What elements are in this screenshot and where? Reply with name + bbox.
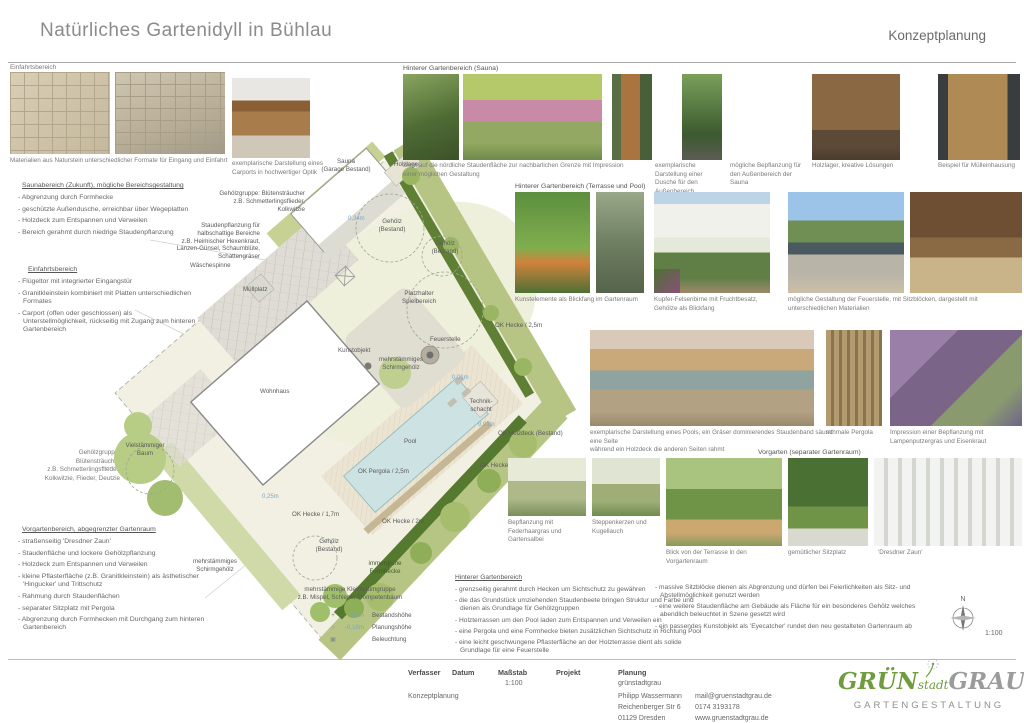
plan-label-holzdeck: OK Holzdeck (Bestand)	[498, 430, 573, 438]
caption-fountain-grass: Impression einer Bepflanzung mit Lampenp…	[890, 429, 1022, 446]
caption-stauden-border: Sicht auf die nördliche Staudenfläche zu…	[403, 162, 633, 179]
photo-terrace-pool-view	[788, 192, 904, 293]
header-rule	[8, 62, 1016, 63]
logo-wordmark: GRÜNstadtGRAU	[838, 668, 1020, 695]
titleblock-web: www.gruenstadtgrau.de	[695, 715, 769, 722]
photo-wood-storage	[812, 74, 900, 160]
note-item: - eine leicht geschwungene Pflasterfläch…	[455, 639, 705, 655]
caption-serviceberry: Kupfer-Felsenbirne mit Fruchtbesatz, Geh…	[654, 296, 774, 313]
photo-sauna-planting	[682, 74, 722, 160]
photo-waste-enclosure	[938, 74, 1020, 160]
north-label: N	[946, 596, 980, 603]
titleblock-header-datum: Datum	[452, 668, 474, 677]
caption-feather-grass: Bepflanzung mit Federhaargras und Garten…	[508, 519, 588, 545]
caption-wood-storage: Holzlager, kreative Lösungen	[812, 162, 912, 171]
section-heading-terrasse-pool: Hinterer Gartenbereich (Terrasse und Poo…	[515, 183, 645, 190]
photo-foxtail-lilies	[592, 458, 660, 516]
photo-fountain-grass	[890, 330, 1022, 426]
caption-outdoor-shower: exemplarische Darstellung einer Dusche f…	[655, 162, 723, 196]
concept-plan-sheet: { "header": { "title": "Natürliches Gart…	[0, 0, 1024, 723]
titleblock-email: mail@gruenstadtgrau.de	[695, 693, 772, 700]
plan-label-kunstobjekt: Kunstobjekt	[338, 347, 370, 355]
photo-narrow-pergola	[826, 330, 882, 426]
plan-label-waeschespinne: Wäschespinne	[190, 262, 231, 270]
legend-value: 0,0m	[338, 612, 364, 619]
legend-value: -0,18m	[338, 624, 364, 631]
titleblock-header-planung: Planung	[618, 668, 646, 677]
photo-art-sculpture	[596, 192, 644, 293]
plan-label-sauna: Sauna (Garage Bestand)	[310, 158, 382, 174]
company-logo: GRÜNstadtGRAU GARTENGESTALTUNG	[838, 660, 1020, 720]
legend-label: Beleuchtung	[372, 636, 406, 643]
rear-garden-notes-col2: - massive Sitzblöcke dienen als Abgrenzu…	[655, 584, 935, 634]
legend-row: ○ -0,18m Planungshöhe	[328, 624, 438, 631]
note-item: - massive Sitzblöcke dienen als Abgrenzu…	[655, 584, 935, 600]
titleblock-header-verfasser: Verfasser	[408, 668, 440, 677]
plan-label-kleinbaum: mehrstämmige Kleinbaumgruppe z.B. Mispel…	[290, 586, 410, 602]
titleblock-header-massstab: Maßstab	[498, 668, 527, 677]
photo-outdoor-shower	[612, 74, 652, 160]
photo-fire-bowl-bench	[910, 192, 1022, 293]
caption-art-elements: Kunstelemente als Blickfang im Gartenrau…	[515, 296, 647, 305]
plan-legend: + 0,0m Bestandshöhe ○ -0,18m Planungshöh…	[328, 612, 438, 648]
titleblock-scale-value: 1:100	[505, 680, 523, 687]
legend-row: + 0,0m Bestandshöhe	[328, 612, 438, 619]
note-item: - eine weitere Staudenfläche am Gebäude …	[655, 603, 935, 619]
titleblock-phone: 0174 3193178	[695, 704, 740, 711]
legend-symbol: ○	[328, 624, 338, 631]
plan-label-hecke-25: OK Hecke / 2,5m	[495, 322, 542, 330]
photo-stauden-border	[463, 74, 602, 160]
plan-label-wohnhaus: Wohnhaus	[260, 388, 289, 396]
caption-waste-enclosure: Beispiel für Mülleinhausung	[938, 162, 1020, 171]
plan-height-marker-025: 0,25m	[262, 494, 279, 500]
photo-paving-1	[10, 72, 110, 154]
logo-part-stadt: stadt	[918, 678, 949, 692]
photo-dresdner-fence	[874, 458, 1022, 546]
photo-inset-fruit	[654, 269, 680, 293]
legend-symbol: +	[328, 612, 338, 619]
plan-label-gehoelzgruppe: Gehölzgruppe: Blütensträucher z.B. Schme…	[205, 190, 305, 213]
plan-label-immergruen: immergrüne Formhecke	[356, 560, 414, 576]
logo-part-gruen: GRÜN	[838, 668, 918, 695]
shrub-group-note: Gehölzgruppe: Blütensträucher z.B. Schme…	[38, 449, 120, 483]
plan-label-pergola: OK Pergola / 2,5m	[358, 468, 409, 476]
caption-pergola: schmale Pergola	[826, 429, 882, 438]
photo-cozy-seating	[788, 458, 868, 546]
photo-feather-grass-bed	[508, 458, 586, 516]
legend-label: Planungshöhe	[372, 624, 412, 631]
rear-garden-col2: - massive Sitzblöcke dienen als Abgrenzu…	[655, 584, 935, 631]
caption-fire-place: mögliche Gestaltung der Feuerstelle, mit…	[788, 296, 1022, 313]
plan-label-technikschacht: Technik- schacht	[460, 398, 502, 414]
rear-garden-heading: Hinterer Gartenbereich	[455, 574, 705, 582]
titleblock-contact-name: Philipp Wassermann	[618, 693, 682, 700]
plan-label-schirmgehoelz-2: mehrstämmiges Schirmgehölz	[182, 558, 248, 574]
north-arrow-icon	[948, 603, 978, 633]
photo-serviceberry-tree	[654, 192, 770, 293]
plan-label-gehoelz-bestand-2: Gehölz (Bestand)	[425, 240, 465, 256]
plan-height-marker-001a: 0,01m	[452, 375, 469, 381]
logo-subtitle: GARTENGESTALTUNG	[838, 700, 1020, 711]
page-title: Natürliches Gartenidyll in Bühlau	[40, 20, 332, 42]
caption-cozy-seating: gemütlicher Sitzplatz	[788, 549, 870, 558]
titleblock-city: 01129 Dresden	[618, 715, 665, 722]
plan-label-schirmgehoelz-1: mehrstämmiges Schirmgehölz	[370, 356, 432, 372]
logo-part-grau: GRAU	[948, 668, 1024, 695]
document-type-label: Konzeptplanung	[888, 28, 986, 43]
caption-dresdner-fence: 'Dresdner Zaun'	[878, 549, 968, 558]
plan-height-marker-001b: 0,01m	[478, 422, 495, 428]
photo-front-garden-view	[666, 458, 782, 546]
caption-front-garden-view: Blick von der Terrasse in den Vorgartenr…	[666, 549, 786, 566]
plan-height-marker-034: 0,34m	[348, 216, 365, 222]
plan-label-feuerstelle: Feuerstelle	[430, 336, 461, 344]
north-indicator: N	[946, 596, 980, 635]
plan-label-vielstaemmig: Vielstämmiger Baum	[114, 442, 176, 458]
note-item: - ein passendes Kunstobjekt als 'Eyecatc…	[655, 623, 935, 631]
plan-scale: 1:100	[985, 630, 1003, 637]
plan-label-gehoelz-bestand-1: Gehölz (Bestand)	[372, 218, 412, 234]
plan-label-stauden: Staudenpflanzung für halbschattige Berei…	[152, 222, 260, 261]
section-heading-vorgarten: Vorgarten (separater Gartenraum)	[758, 449, 861, 456]
plan-label-muellplatz: Müllplatz	[243, 286, 267, 294]
plan-label-gehoelz-bestand-3: Gehölz (Bestand)	[308, 538, 350, 554]
titleblock-firm: grünstadtgrau	[618, 680, 661, 687]
legend-row: ▣ Beleuchtung	[328, 636, 438, 643]
titleblock-header-projekt: Projekt	[556, 668, 580, 677]
plan-label-spielbereich: Platzhalter Spielbereich	[388, 290, 450, 306]
titleblock-street: Reichenberger Str 6	[618, 704, 681, 711]
section-heading-sauna: Hinterer Gartenbereich (Sauna)	[403, 65, 498, 72]
caption-foxtail-lilies: Steppenkerzen und Kugellauch	[592, 519, 662, 536]
legend-label: Bestandshöhe	[372, 612, 412, 619]
photo-pool-panorama	[590, 330, 814, 426]
plan-label-hecke-17: OK Hecke / 1,7m	[292, 511, 339, 519]
photo-art-garden	[515, 192, 590, 293]
plan-label-hecke-2-mid: OK Hecke / 2m	[382, 518, 424, 526]
titleblock-verfasser-value: Konzeptplanung	[408, 693, 459, 700]
plan-label-pool: Pool	[404, 438, 416, 446]
caption-sauna-planting: mögliche Bepflanzung für den Außenbereic…	[730, 162, 808, 188]
legend-symbol: ▣	[328, 636, 338, 643]
photo-garden-lawn	[403, 74, 459, 160]
